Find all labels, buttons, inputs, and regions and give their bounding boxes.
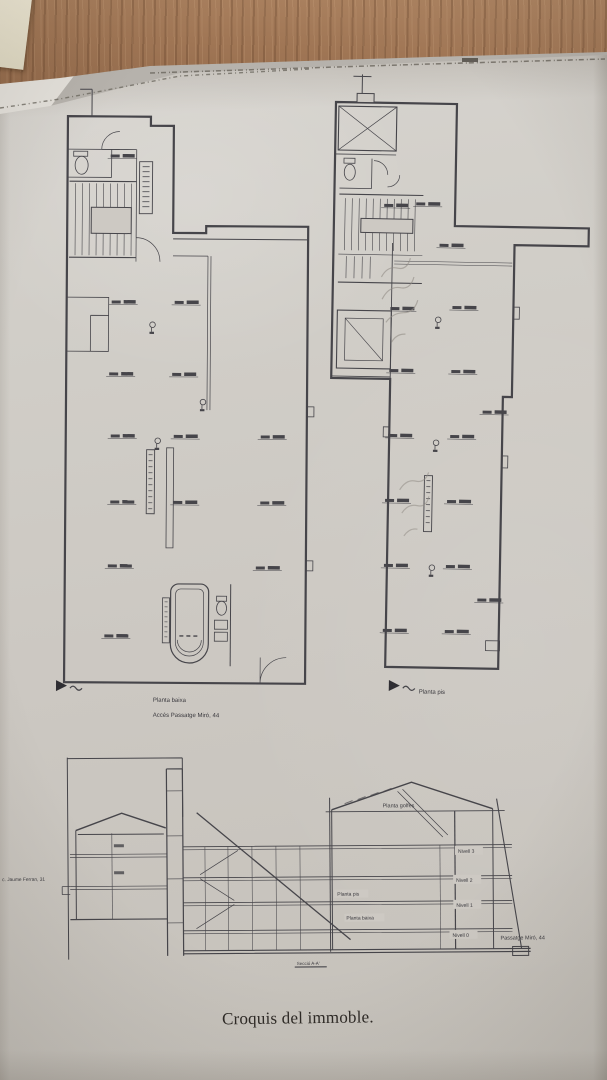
vertical-label-box	[146, 450, 154, 514]
entrance-marker-icon	[389, 680, 415, 691]
floorplan-planta-pis: Planta pis	[326, 74, 592, 698]
plan-sublabel: Accés Passatge Miró, 44	[153, 713, 220, 719]
section-ref-label: Secció A-A'	[297, 961, 320, 966]
attic-label: Planta golfes	[383, 803, 415, 809]
vertical-label-box	[162, 598, 169, 643]
building-section: Planta golfes Nivell 3 Nivell 2 Nivell 1…	[1, 754, 545, 969]
floorplan-planta-baixa: Planta baixa Accés Passatge Miró, 44	[56, 89, 316, 720]
dimension-annotations	[374, 201, 513, 635]
level-label: Nivell 2	[456, 878, 473, 884]
vertical-label-box	[139, 162, 152, 214]
ramp	[170, 584, 209, 663]
street-label-right: Passatge Miró, 44	[501, 935, 545, 941]
floor-label: Planta pis	[337, 892, 359, 898]
bathroom-fixtures	[214, 584, 231, 666]
toilet-icon	[74, 151, 89, 174]
plan-label: Planta pis	[419, 690, 445, 696]
elevator-shaft	[336, 310, 391, 369]
staircase	[338, 194, 424, 283]
street-label-left: c. Jaume Ferran, 31	[2, 877, 45, 883]
document-caption: Croquis del immoble.	[222, 1007, 422, 1030]
plan-label: Planta baixa	[153, 698, 187, 704]
level-label: Nivell 0	[453, 933, 470, 939]
level-label: Nivell 3	[458, 849, 475, 855]
floor-label: Planta baixa	[346, 915, 374, 921]
level-label: Nivell 1	[456, 903, 473, 909]
pencil-annotation	[396, 472, 431, 536]
photocopy-edge-marks	[0, 58, 605, 108]
architectural-drawing: Planta baixa Accés Passatge Miró, 44	[0, 0, 607, 1080]
photo-of-document: Planta baixa Accés Passatge Miró, 44	[0, 0, 607, 1080]
staircase	[69, 181, 137, 257]
pencil-annotation	[378, 258, 422, 343]
toilet-icon	[344, 158, 356, 180]
skylight-shaft	[338, 106, 397, 151]
